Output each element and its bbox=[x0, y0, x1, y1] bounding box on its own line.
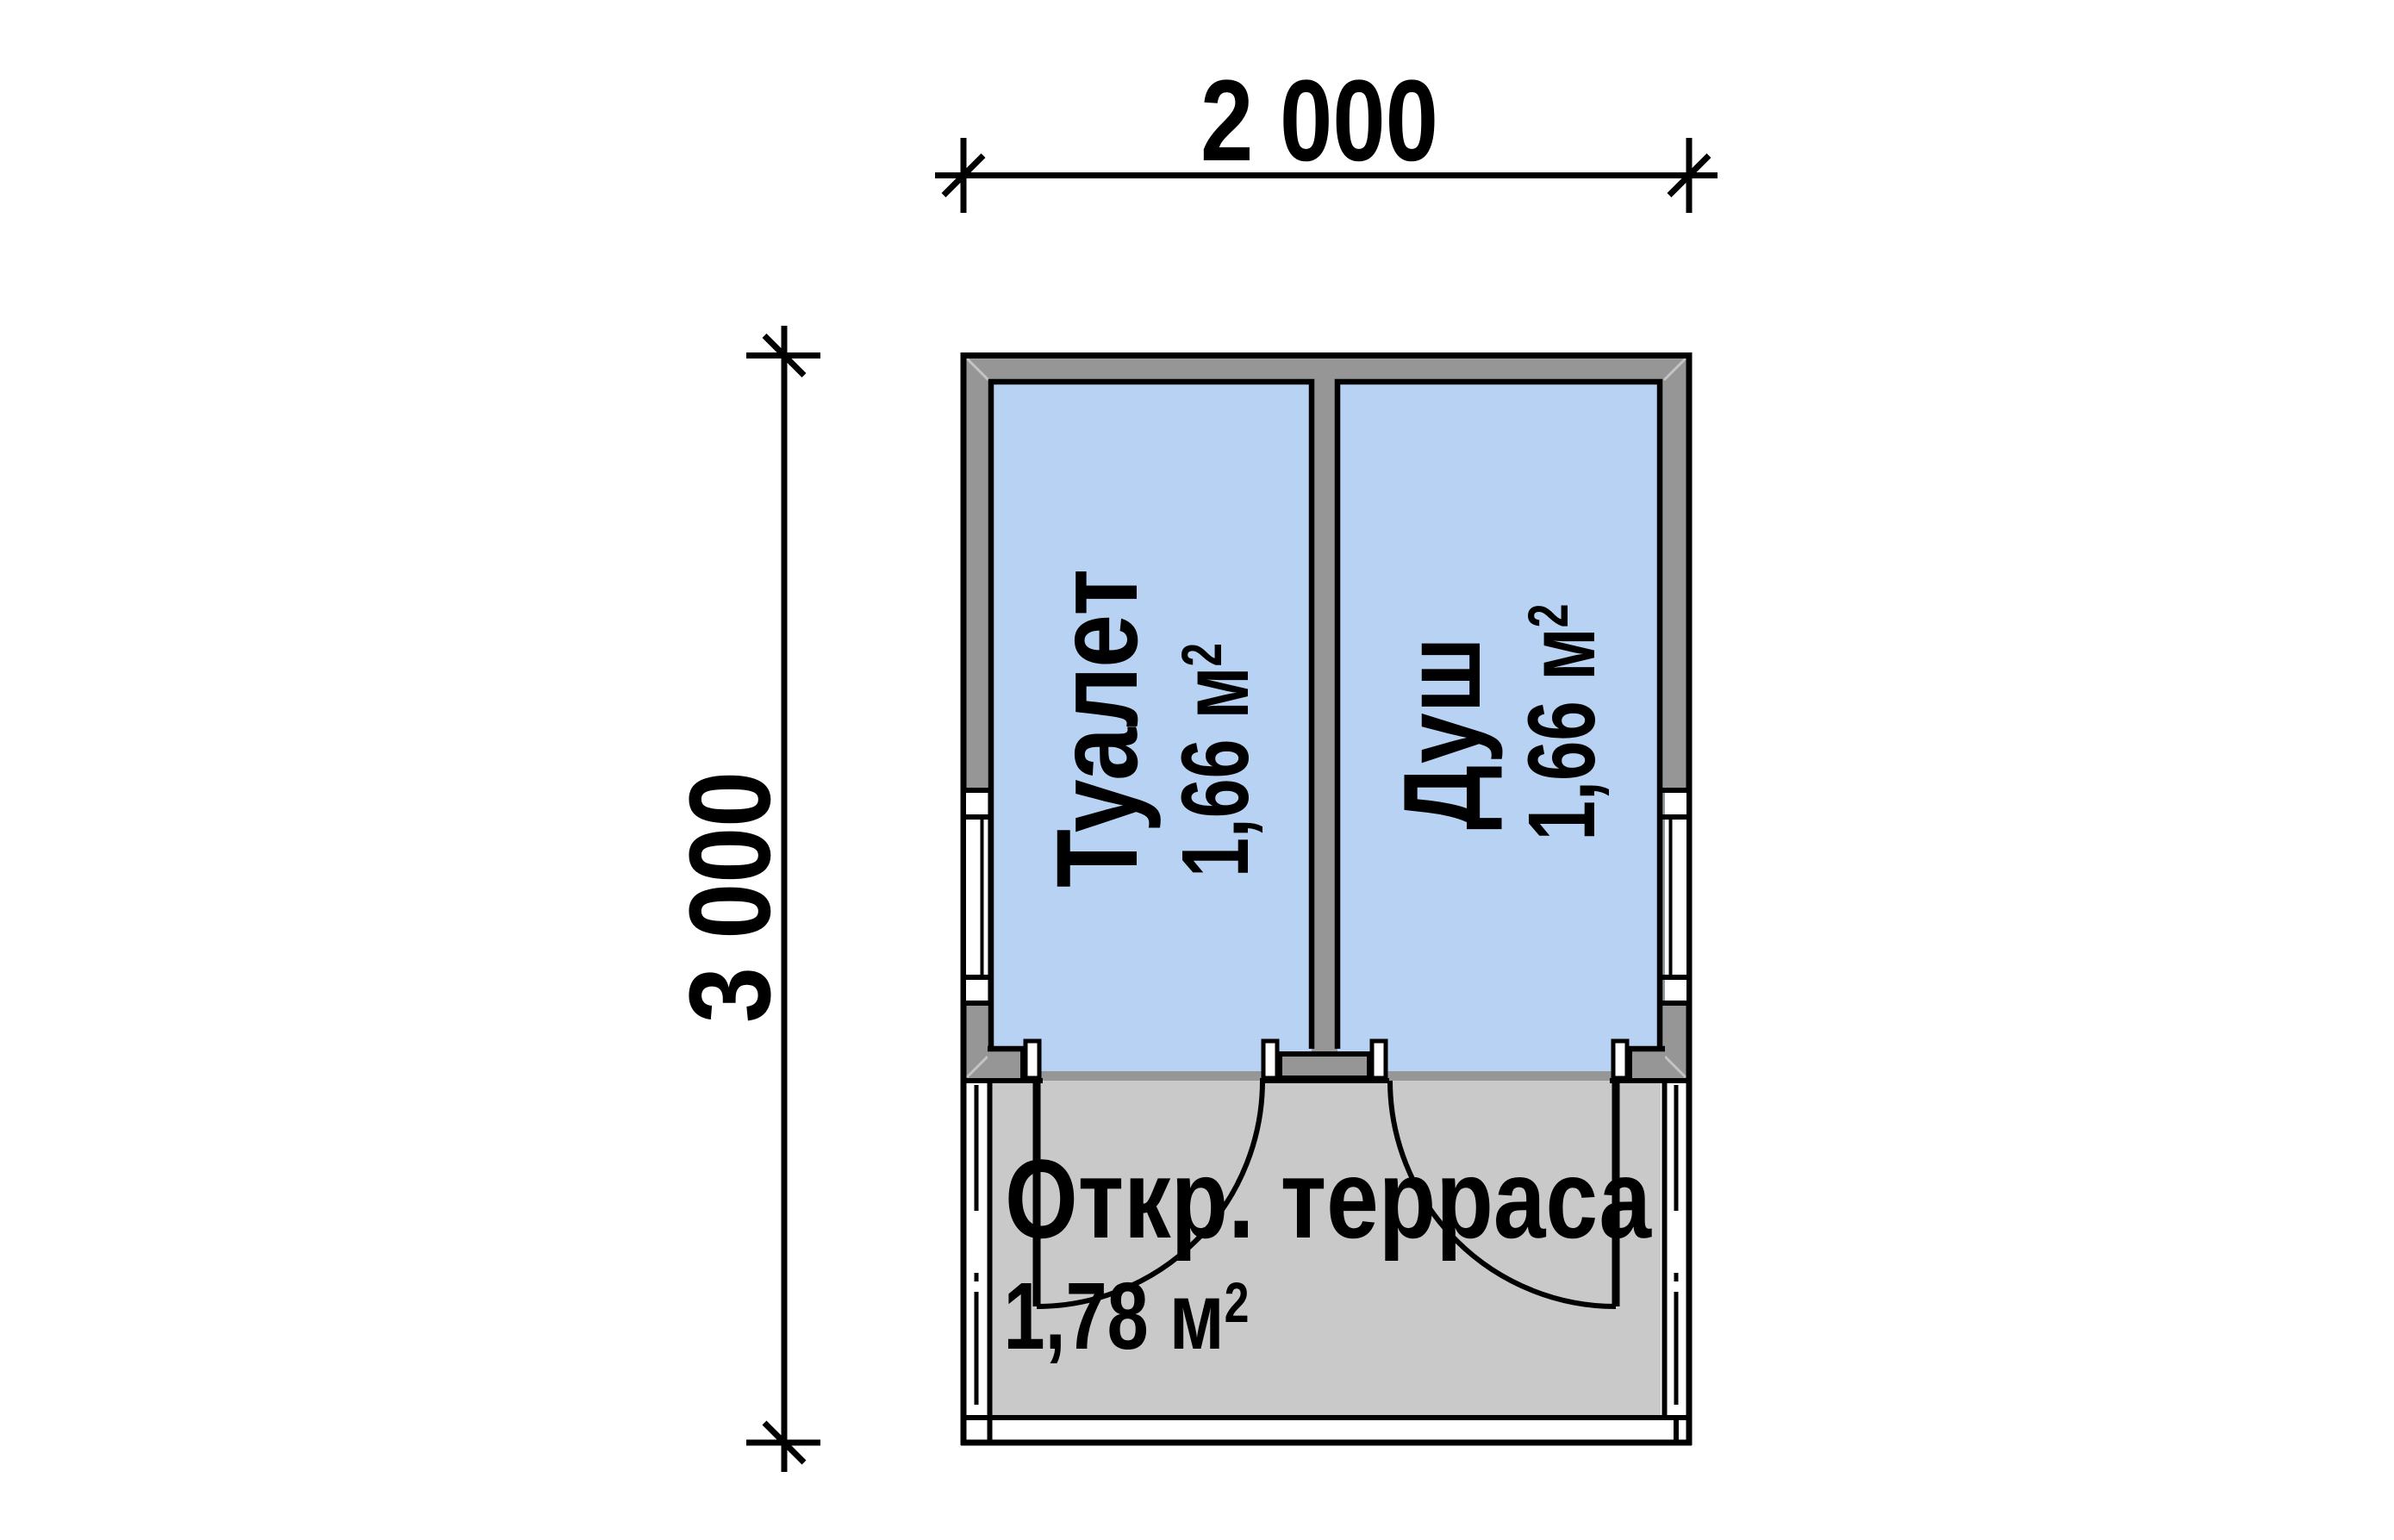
svg-text:1,78 м2: 1,78 м2 bbox=[1004, 1263, 1250, 1369]
svg-text:3 000: 3 000 bbox=[666, 771, 795, 1023]
svg-text:1,66 м2: 1,66 м2 bbox=[1163, 643, 1269, 877]
svg-text:1,66 м2: 1,66 м2 bbox=[1509, 604, 1615, 841]
svg-text:Душ: Душ bbox=[1381, 637, 1503, 830]
svg-text:Откр. терраса: Откр. терраса bbox=[1005, 1136, 1652, 1262]
svg-text:Туалет: Туалет bbox=[1033, 569, 1162, 888]
svg-text:2 000: 2 000 bbox=[1200, 57, 1438, 185]
